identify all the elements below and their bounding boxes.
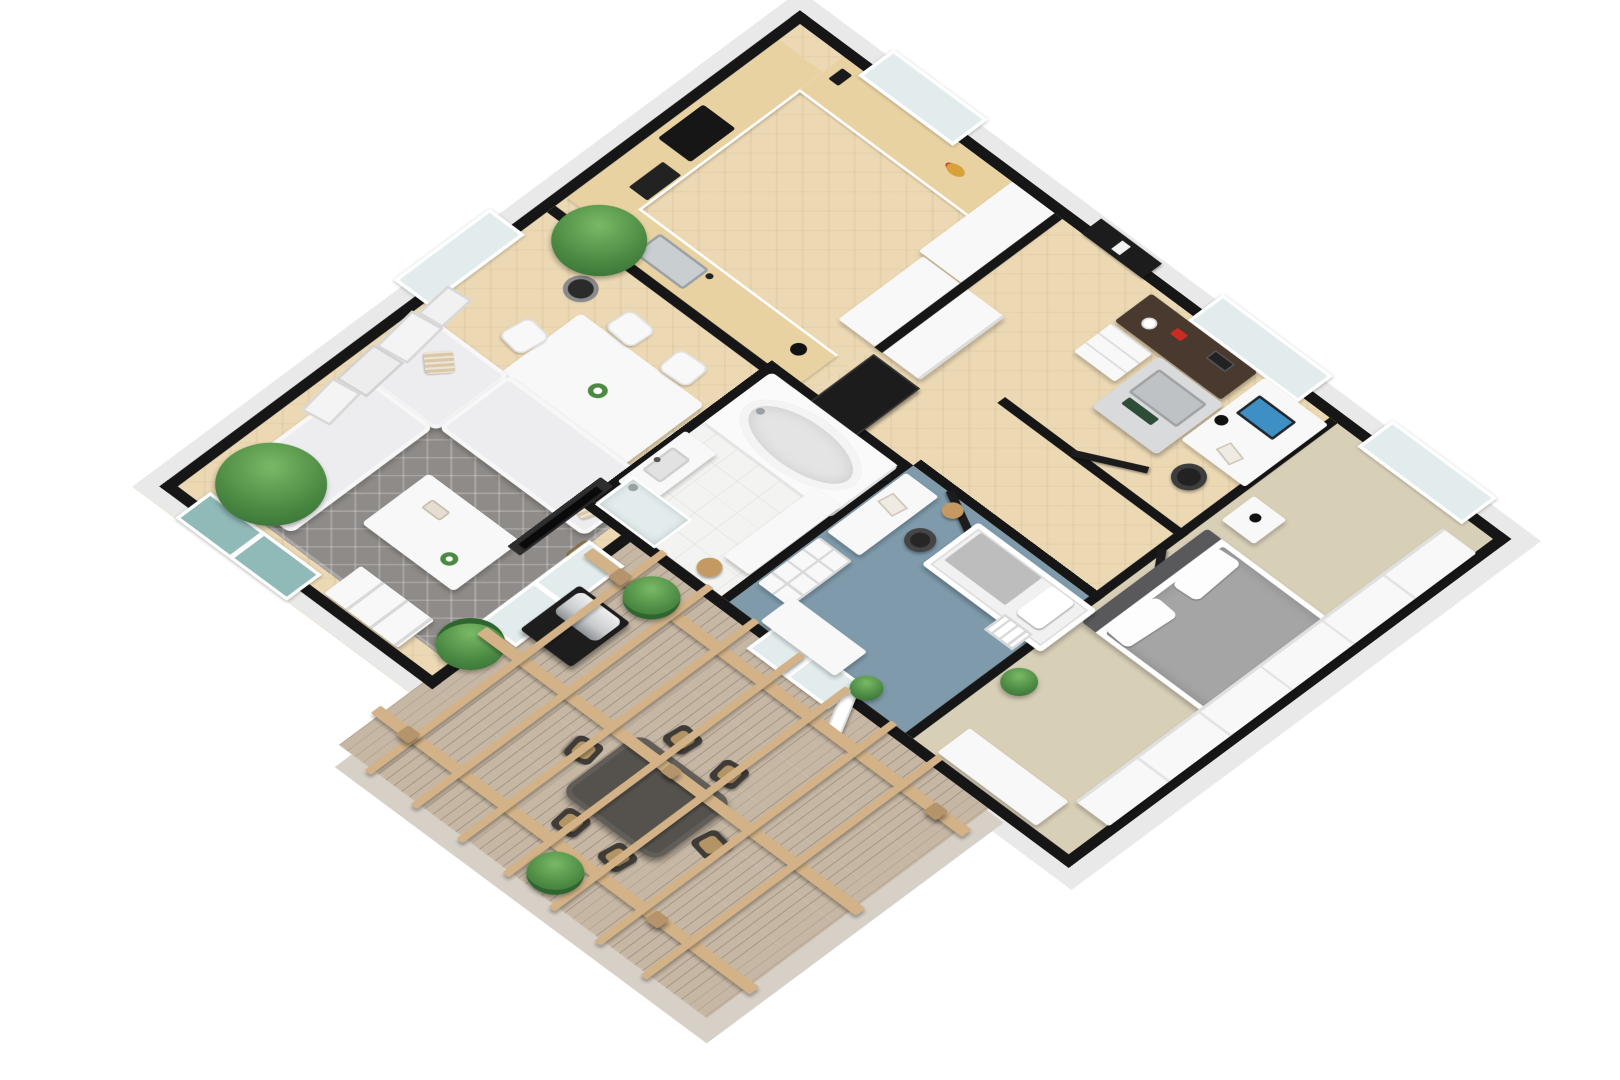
floorplan-stage: 3D isometric floor plan render — apartme…	[0, 0, 1620, 1080]
sofa-cushion	[423, 350, 456, 374]
